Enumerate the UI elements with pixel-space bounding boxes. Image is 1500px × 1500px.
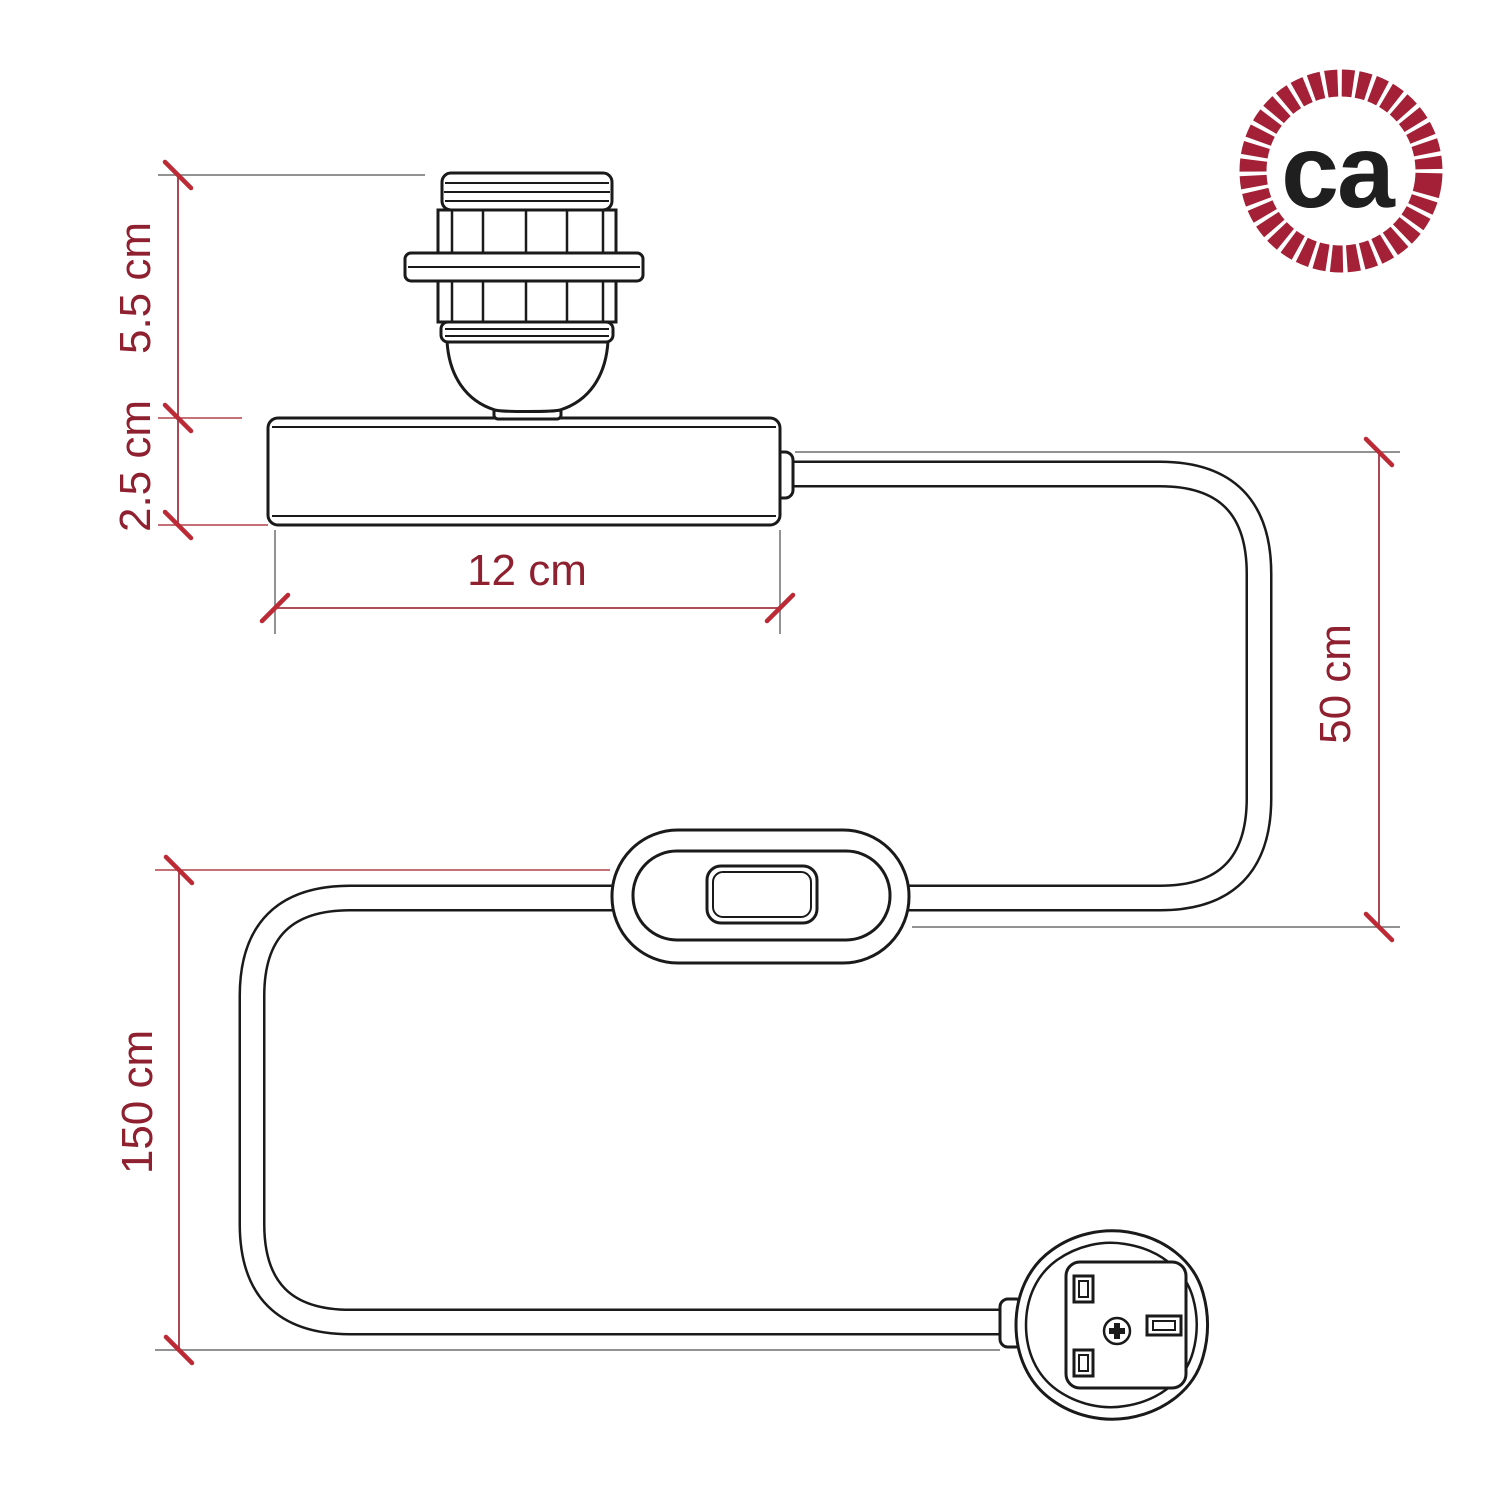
dimension-label-base-to-switch: 50 cm [1311,624,1360,744]
lamp-base [268,418,793,525]
dimension-label-base-height: 2.5 cm [111,400,160,532]
cable-core [252,898,1012,1322]
dimension-base-height: 2.5 cm [111,400,268,538]
dimension-label-base-width: 12 cm [467,546,587,595]
cable-segment-switch-to-plug [252,898,1012,1322]
base-body [268,418,780,525]
inline-switch [612,830,909,963]
technical-drawing-page: 5.5 cm 2.5 cm 12 cm 50 cm 150 cm ca [0,0,1500,1500]
dimension-label-switch-to-plug: 150 cm [113,1030,162,1174]
socket-cup [447,341,608,412]
dimension-socket-height: 5.5 cm [111,162,425,431]
plug-pin-top [1074,1276,1093,1302]
technical-drawing: 5.5 cm 2.5 cm 12 cm 50 cm 150 cm ca [0,0,1500,1500]
logo-text: ca [1281,114,1396,230]
brand-logo: ca [1242,72,1441,271]
dimension-base-width: 12 cm [262,530,793,634]
switch-button [707,866,817,923]
dimension-label-socket-height: 5.5 cm [111,222,160,354]
lamp-holder [405,173,643,419]
uk-plug [1000,1231,1208,1419]
plug-pin-bottom [1074,1350,1093,1376]
socket-threads-bottom [441,322,613,342]
